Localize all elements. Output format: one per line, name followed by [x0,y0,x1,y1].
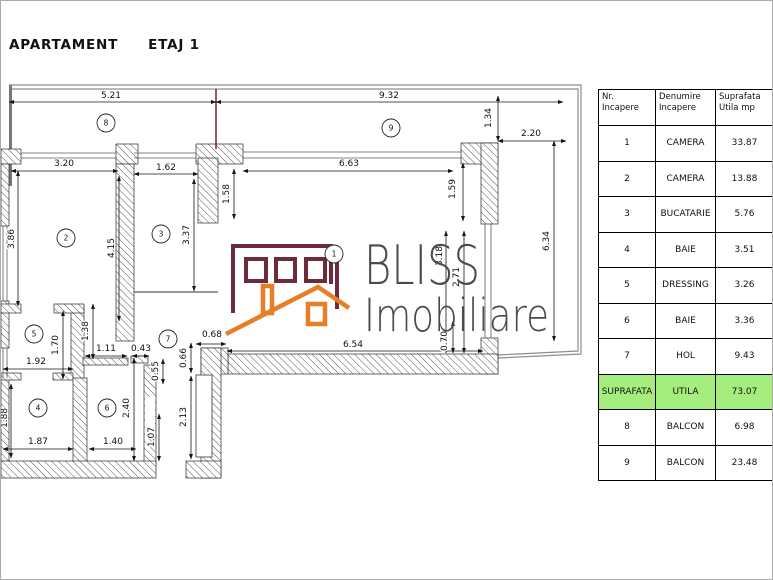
table-row: 5DRESSING3.26 [599,268,773,304]
table-cell: SUPRAFATA [599,374,656,410]
table-header-cell: Suprafata Utila mp [716,90,773,126]
room-number: 7 [166,335,171,344]
dimension-label: 2.40 [122,398,132,418]
dimension-label: 1.58 [222,184,232,204]
table-cell: BAIE [656,303,716,339]
table-cell: BALCON [656,445,716,481]
room-number: 2 [64,234,69,243]
dimension-label: 1.62 [156,163,176,173]
table-cell: 5.76 [716,197,773,233]
table-cell: 6.98 [716,410,773,446]
dimension-label: 1.38 [81,321,91,341]
table-header-cell: Nr. Incapere [599,90,656,126]
table-row: 3BUCATARIE5.76 [599,197,773,233]
table-cell: 5 [599,268,656,304]
room-number: 5 [32,330,37,339]
dimension-label: 1.88 [1,408,10,428]
page: APARTAMENTETAJ 1 [0,0,773,580]
room-number: 9 [389,124,394,133]
floor-plan-svg: 5.219.321.342.203.201.626.631.581.596.34… [1,1,596,580]
table-cell: 4 [599,232,656,268]
dimension-label: 4.15 [107,238,117,258]
logo: BLISS Imobiliare [226,234,549,342]
table-cell: BALCON [656,410,716,446]
table-cell: BAIE [656,232,716,268]
table-row: 6BAIE3.36 [599,303,773,339]
dimension-label: 2.13 [179,407,189,427]
room-number: 1 [332,250,337,259]
table-cell: DRESSING [656,268,716,304]
table-cell: 3.51 [716,232,773,268]
table-cell: 13.88 [716,161,773,197]
table-row: 1CAMERA33.87 [599,126,773,162]
table-cell: CAMERA [656,161,716,197]
table-header-row: Nr. IncapereDenumire IncapereSuprafata U… [599,90,773,126]
logo-brand-subtext: Imobiliare [364,289,549,342]
dimension-label: 1.34 [484,108,494,128]
area-table: Nr. IncapereDenumire IncapereSuprafata U… [598,89,773,481]
dimension-label: 3.86 [7,229,17,249]
room-number: 6 [105,404,110,413]
dimension-label: 6.63 [339,159,359,169]
area-table-body: 1CAMERA33.872CAMERA13.883BUCATARIE5.764B… [599,126,773,481]
table-cell: 23.48 [716,445,773,481]
table-cell: 3.36 [716,303,773,339]
dimension-label: 5.21 [101,91,121,101]
table-cell: 9 [599,445,656,481]
table-cell: 8 [599,410,656,446]
table-cell: 7 [599,339,656,375]
dimension-label: 6.54 [343,340,363,350]
door-leaf [196,375,212,457]
table-cell: BUCATARIE [656,197,716,233]
logo-window-1 [246,259,266,281]
table-header-cell: Denumire Incapere [656,90,716,126]
table-cell: 3 [599,197,656,233]
table-cell: 73.07 [716,374,773,410]
dimension-label: 6.34 [542,231,552,251]
table-row: 7HOL9.43 [599,339,773,375]
dimension-label: 0.55 [151,361,161,381]
table-row: 4BAIE3.51 [599,232,773,268]
dimension-label: 0.68 [202,330,222,340]
logo-window-2 [276,259,295,281]
dimension-label: 1.40 [103,437,123,447]
table-cell: 3.26 [716,268,773,304]
table-row: 8BALCON6.98 [599,410,773,446]
table-cell: 6 [599,303,656,339]
logo-window-3 [306,259,325,281]
dimension-label: 1.92 [26,357,46,367]
table-cell: 33.87 [716,126,773,162]
dimension-label: 0.43 [131,344,151,354]
logo-roof-line [226,287,349,334]
table-row: SUPRAFATAUTILA73.07 [599,374,773,410]
dimension-label: 1.59 [448,179,458,199]
dimension-label: 3.20 [54,159,74,169]
dimension-label: 1.07 [147,427,157,447]
table-cell: 9.43 [716,339,773,375]
dimension-label: 1.11 [96,344,116,354]
table-cell: 2 [599,161,656,197]
table-row: 2CAMERA13.88 [599,161,773,197]
dimension-label: 1.87 [28,437,48,447]
table-cell: UTILA [656,374,716,410]
table-row: 9BALCON23.48 [599,445,773,481]
dimension-label: 3.37 [182,225,192,245]
table-cell: 1 [599,126,656,162]
table-cell: CAMERA [656,126,716,162]
dimension-label: 1.70 [51,335,61,355]
dimension-label: 2.20 [521,129,541,139]
logo-roof-window [308,304,325,324]
dimension-label: 9.32 [379,91,399,101]
dimension-label: 0.66 [179,348,189,368]
room-number: 4 [36,404,41,413]
room-number: 8 [104,119,109,128]
room-number: 3 [159,230,164,239]
table-cell: HOL [656,339,716,375]
logo-brand-text: BLISS [364,234,480,297]
